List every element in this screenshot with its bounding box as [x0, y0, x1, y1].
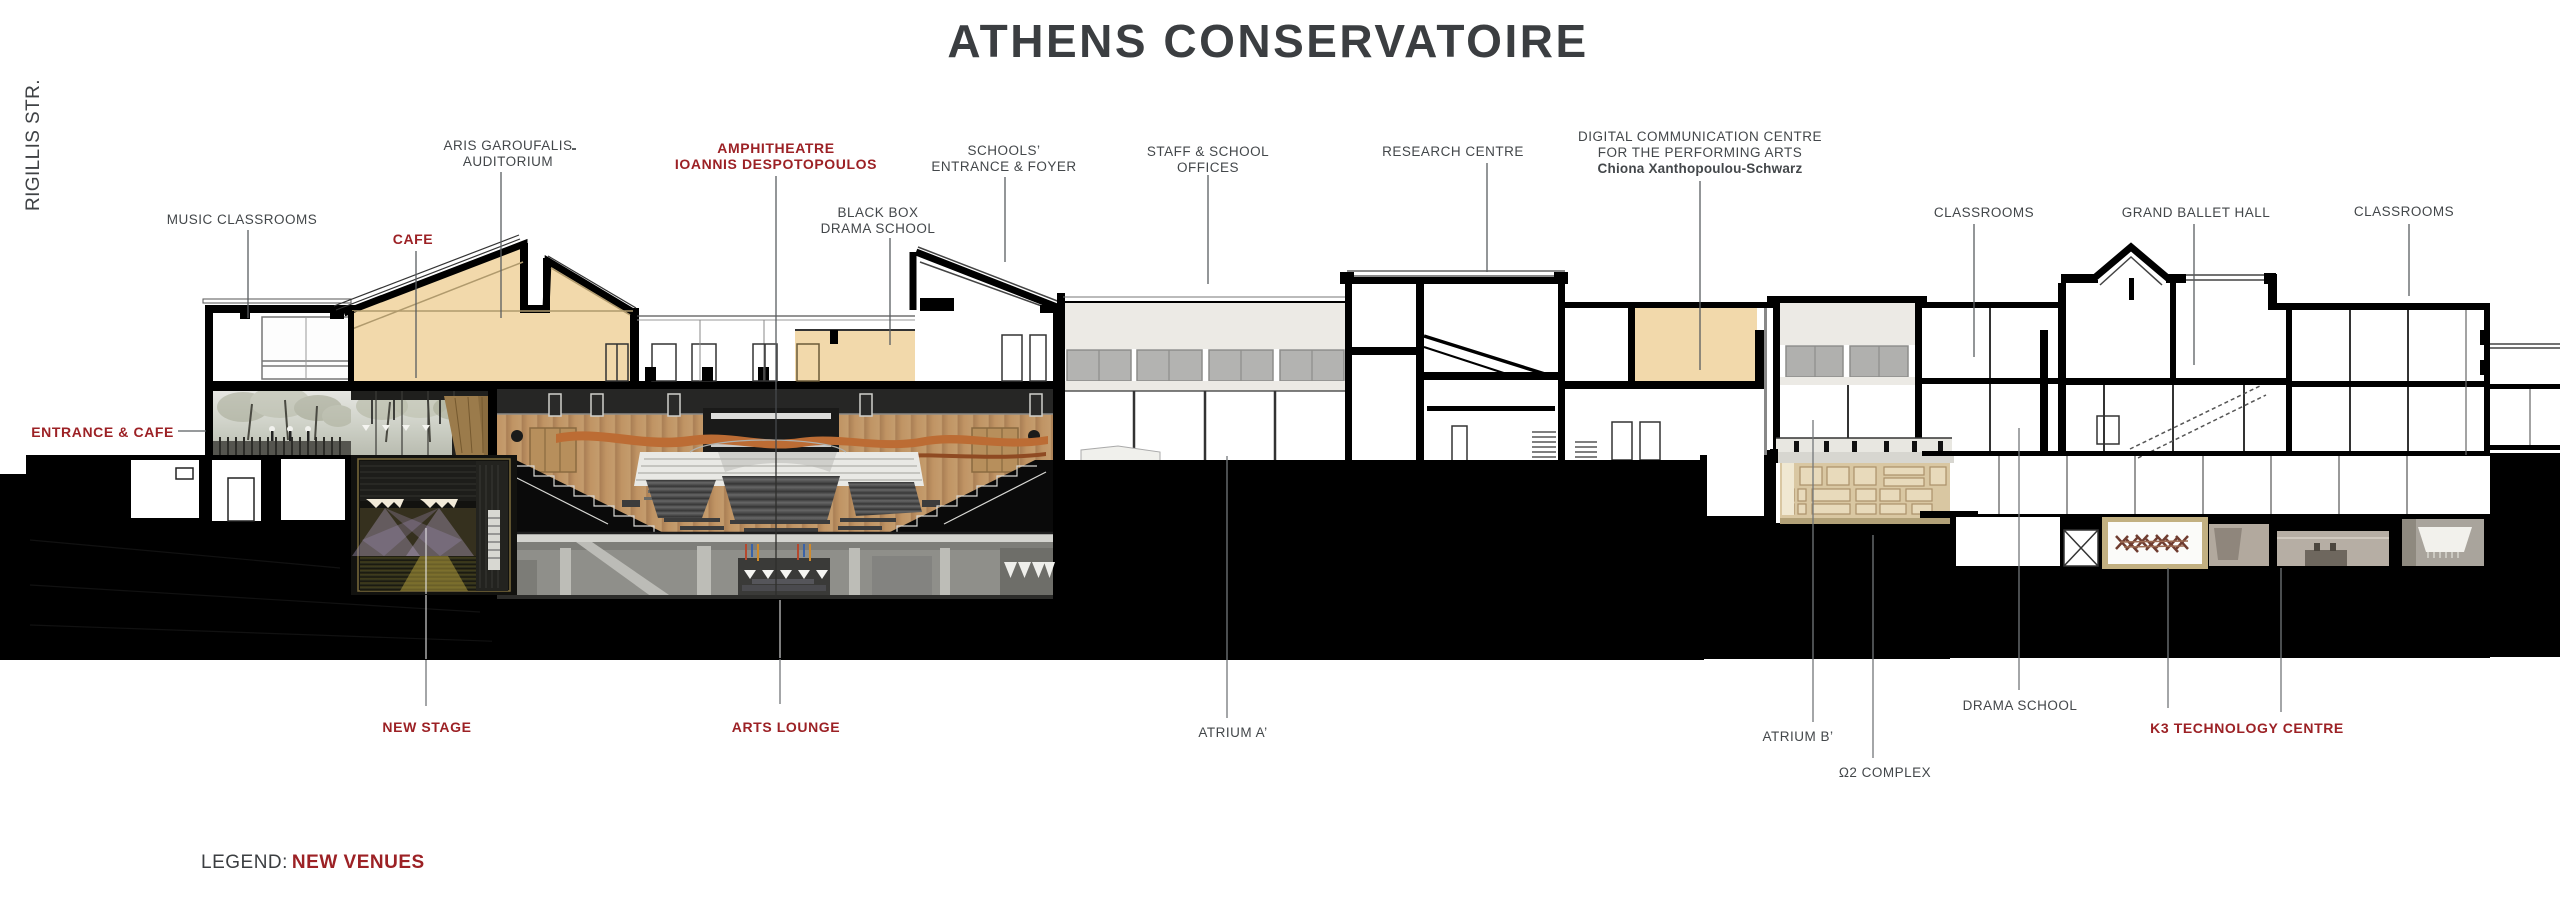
- svg-text:ENTRANCE & CAFE: ENTRANCE & CAFE: [31, 424, 174, 440]
- svg-text:DRAMA SCHOOL: DRAMA SCHOOL: [821, 221, 936, 236]
- svg-text:Chiona Xanthopoulou-Schwarz: Chiona Xanthopoulou-Schwarz: [1598, 161, 1803, 176]
- svg-text:ENTRANCE & FOYER: ENTRANCE & FOYER: [931, 159, 1076, 174]
- svg-text:RESEARCH CENTRE: RESEARCH CENTRE: [1382, 144, 1524, 159]
- svg-text:RIGILLIS STR.: RIGILLIS STR.: [23, 79, 44, 211]
- svg-text:Ω2 COMPLEX: Ω2 COMPLEX: [1839, 765, 1931, 780]
- svg-text:ATRIUM A’: ATRIUM A’: [1198, 725, 1267, 740]
- svg-text:ARTS LOUNGE: ARTS LOUNGE: [732, 719, 841, 735]
- svg-text:STAFF & SCHOOL: STAFF & SCHOOL: [1147, 144, 1269, 159]
- svg-text:K3 TECHNOLOGY CENTRE: K3 TECHNOLOGY CENTRE: [2150, 720, 2344, 736]
- svg-text:LEGEND:NEW VENUES: LEGEND:NEW VENUES: [201, 852, 425, 873]
- svg-text:GRAND BALLET HALL: GRAND BALLET HALL: [2122, 205, 2271, 220]
- svg-text:AMPHITHEATRE: AMPHITHEATRE: [717, 140, 834, 156]
- svg-text:ATRIUM B’: ATRIUM B’: [1763, 729, 1834, 744]
- svg-text:OFFICES: OFFICES: [1177, 160, 1239, 175]
- svg-text:NEW STAGE: NEW STAGE: [382, 719, 471, 735]
- svg-text:CLASSROOMS: CLASSROOMS: [1934, 205, 2034, 220]
- svg-text:ATHENS CONSERVATOIRE: ATHENS CONSERVATOIRE: [947, 15, 1588, 67]
- svg-text:DRAMA SCHOOL: DRAMA SCHOOL: [1963, 698, 2078, 713]
- svg-text:SCHOOLS’: SCHOOLS’: [967, 143, 1040, 158]
- svg-text:FOR THE PERFORMING ARTS: FOR THE PERFORMING ARTS: [1598, 145, 1803, 160]
- svg-text:CLASSROOMS: CLASSROOMS: [2354, 204, 2454, 219]
- svg-text:AUDITORIUM: AUDITORIUM: [463, 154, 553, 169]
- svg-text:MUSIC CLASSROOMS: MUSIC CLASSROOMS: [167, 212, 318, 227]
- svg-text:DIGITAL COMMUNICATION CENTRE: DIGITAL COMMUNICATION CENTRE: [1578, 129, 1822, 144]
- svg-text:CAFE: CAFE: [393, 231, 434, 247]
- svg-text:ARIS GAROUFALIS: ARIS GAROUFALIS: [443, 138, 572, 153]
- svg-text:IOANNIS DESPOTOPOULOS: IOANNIS DESPOTOPOULOS: [675, 156, 877, 172]
- svg-text:BLACK BOX: BLACK BOX: [837, 205, 918, 220]
